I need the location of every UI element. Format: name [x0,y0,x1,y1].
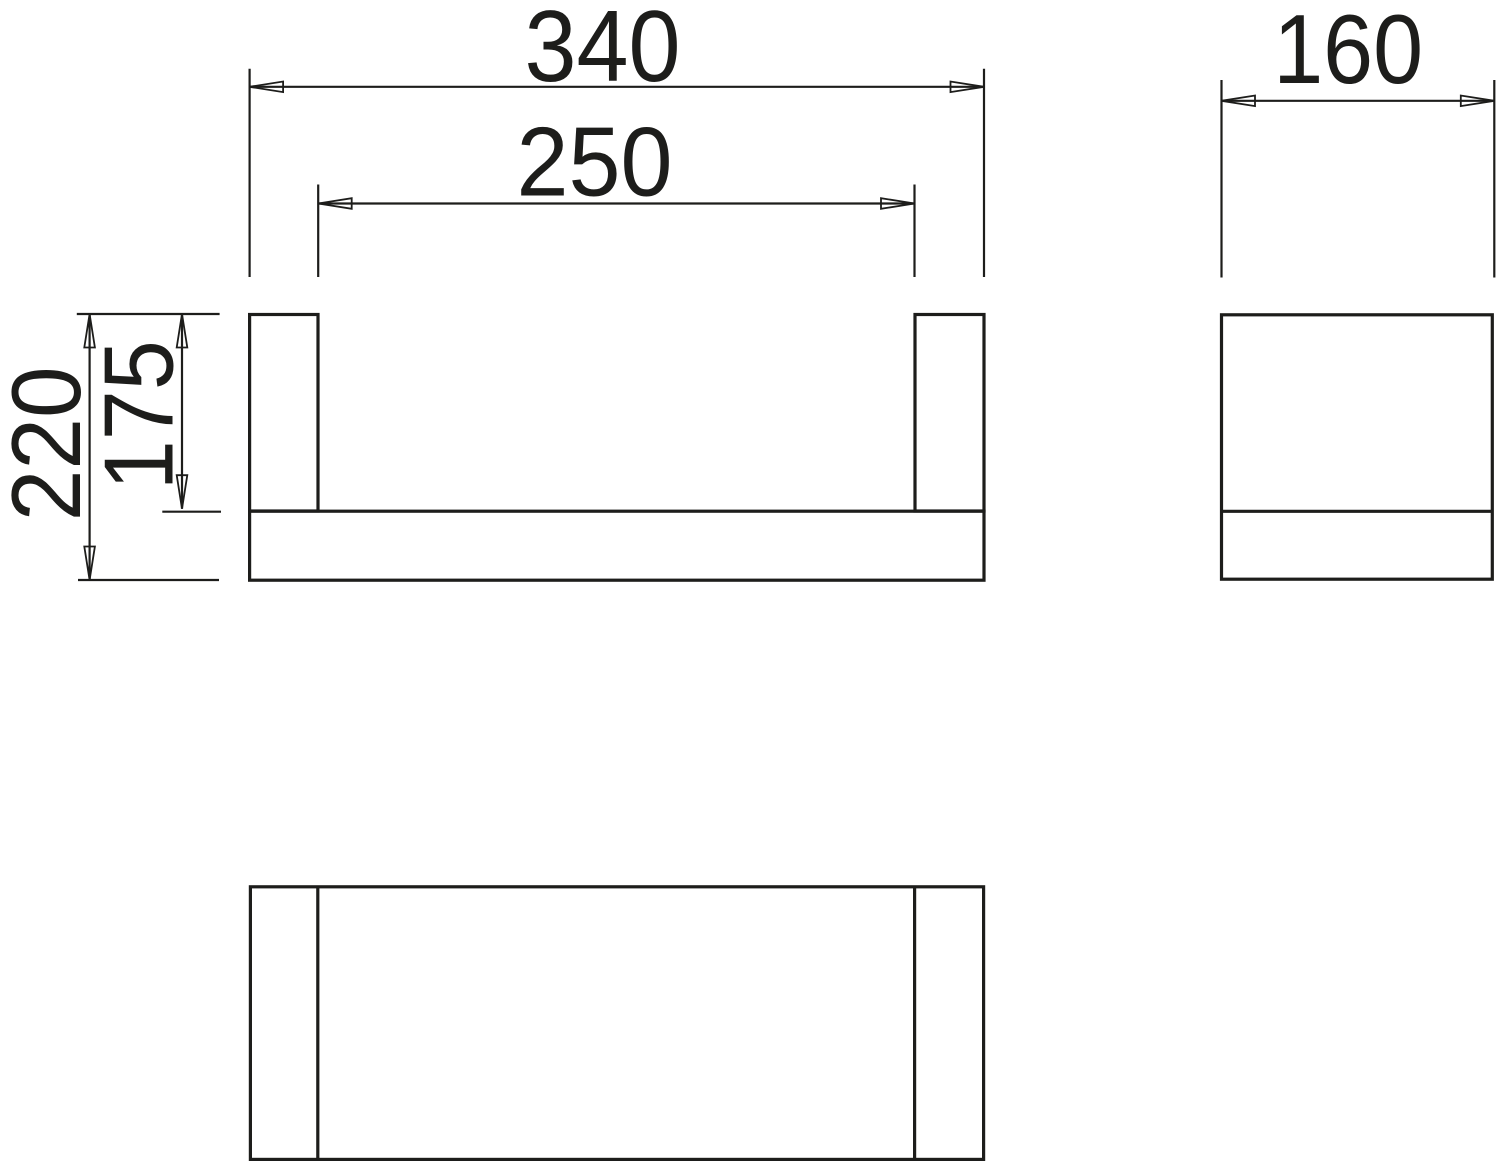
svg-text:175: 175 [84,340,194,490]
svg-text:340: 340 [525,0,681,103]
svg-text:160: 160 [1273,0,1423,104]
svg-text:250: 250 [517,107,673,217]
